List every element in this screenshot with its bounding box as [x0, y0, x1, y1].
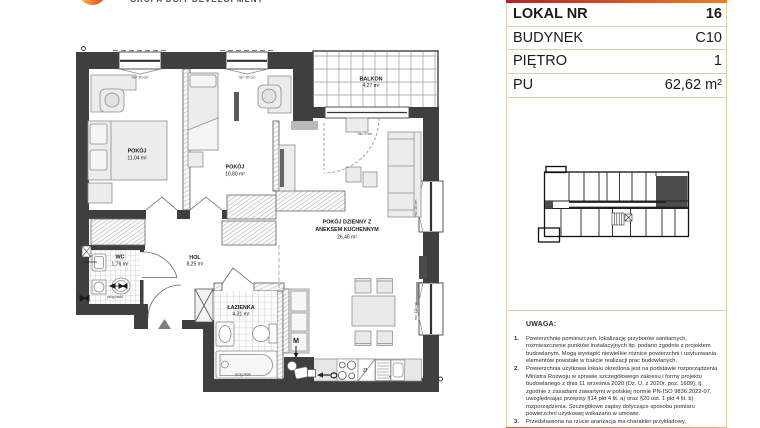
svg-text:HOL: HOL — [189, 255, 201, 261]
svg-text:hs= 20 cm: hs= 20 cm — [239, 76, 256, 80]
svg-text:M: M — [293, 338, 299, 345]
svg-text:11,04 m²: 11,04 m² — [127, 156, 147, 162]
svg-text:ANEKSEM KUCHENNYM: ANEKSEM KUCHENNYM — [315, 227, 379, 233]
svg-text:hs= 20 cm: hs= 20 cm — [414, 200, 418, 217]
svg-text:Zl: Zl — [363, 368, 367, 373]
svg-text:4,27 m²: 4,27 m² — [363, 83, 380, 89]
svg-text:próg niski: próg niski — [235, 373, 251, 377]
svg-text:próg niski: próg niski — [107, 295, 123, 299]
svg-text:hs= 110 cm: hs= 110 cm — [414, 302, 418, 320]
svg-text:1,76 m²: 1,76 m² — [112, 262, 129, 268]
svg-text:4,31 m²: 4,31 m² — [233, 312, 250, 318]
svg-text:POKÓJ DZIENNY Z: POKÓJ DZIENNY Z — [323, 218, 372, 226]
svg-text:POKÓJ: POKÓJ — [128, 147, 147, 155]
svg-text:ŁAZIENKA: ŁAZIENKA — [227, 305, 254, 311]
svg-text:10,80 m²: 10,80 m² — [225, 172, 245, 178]
svg-text:8,25 m²: 8,25 m² — [187, 262, 204, 268]
svg-text:hs= 20 cm: hs= 20 cm — [132, 76, 149, 80]
svg-text:hs= 0 cm: hs= 0 cm — [358, 132, 373, 136]
svg-text:26,46 m²: 26,46 m² — [337, 235, 357, 241]
svg-text:WC: WC — [116, 255, 125, 261]
svg-text:BALKON: BALKON — [359, 77, 382, 83]
svg-text:POKÓJ: POKÓJ — [226, 163, 245, 171]
